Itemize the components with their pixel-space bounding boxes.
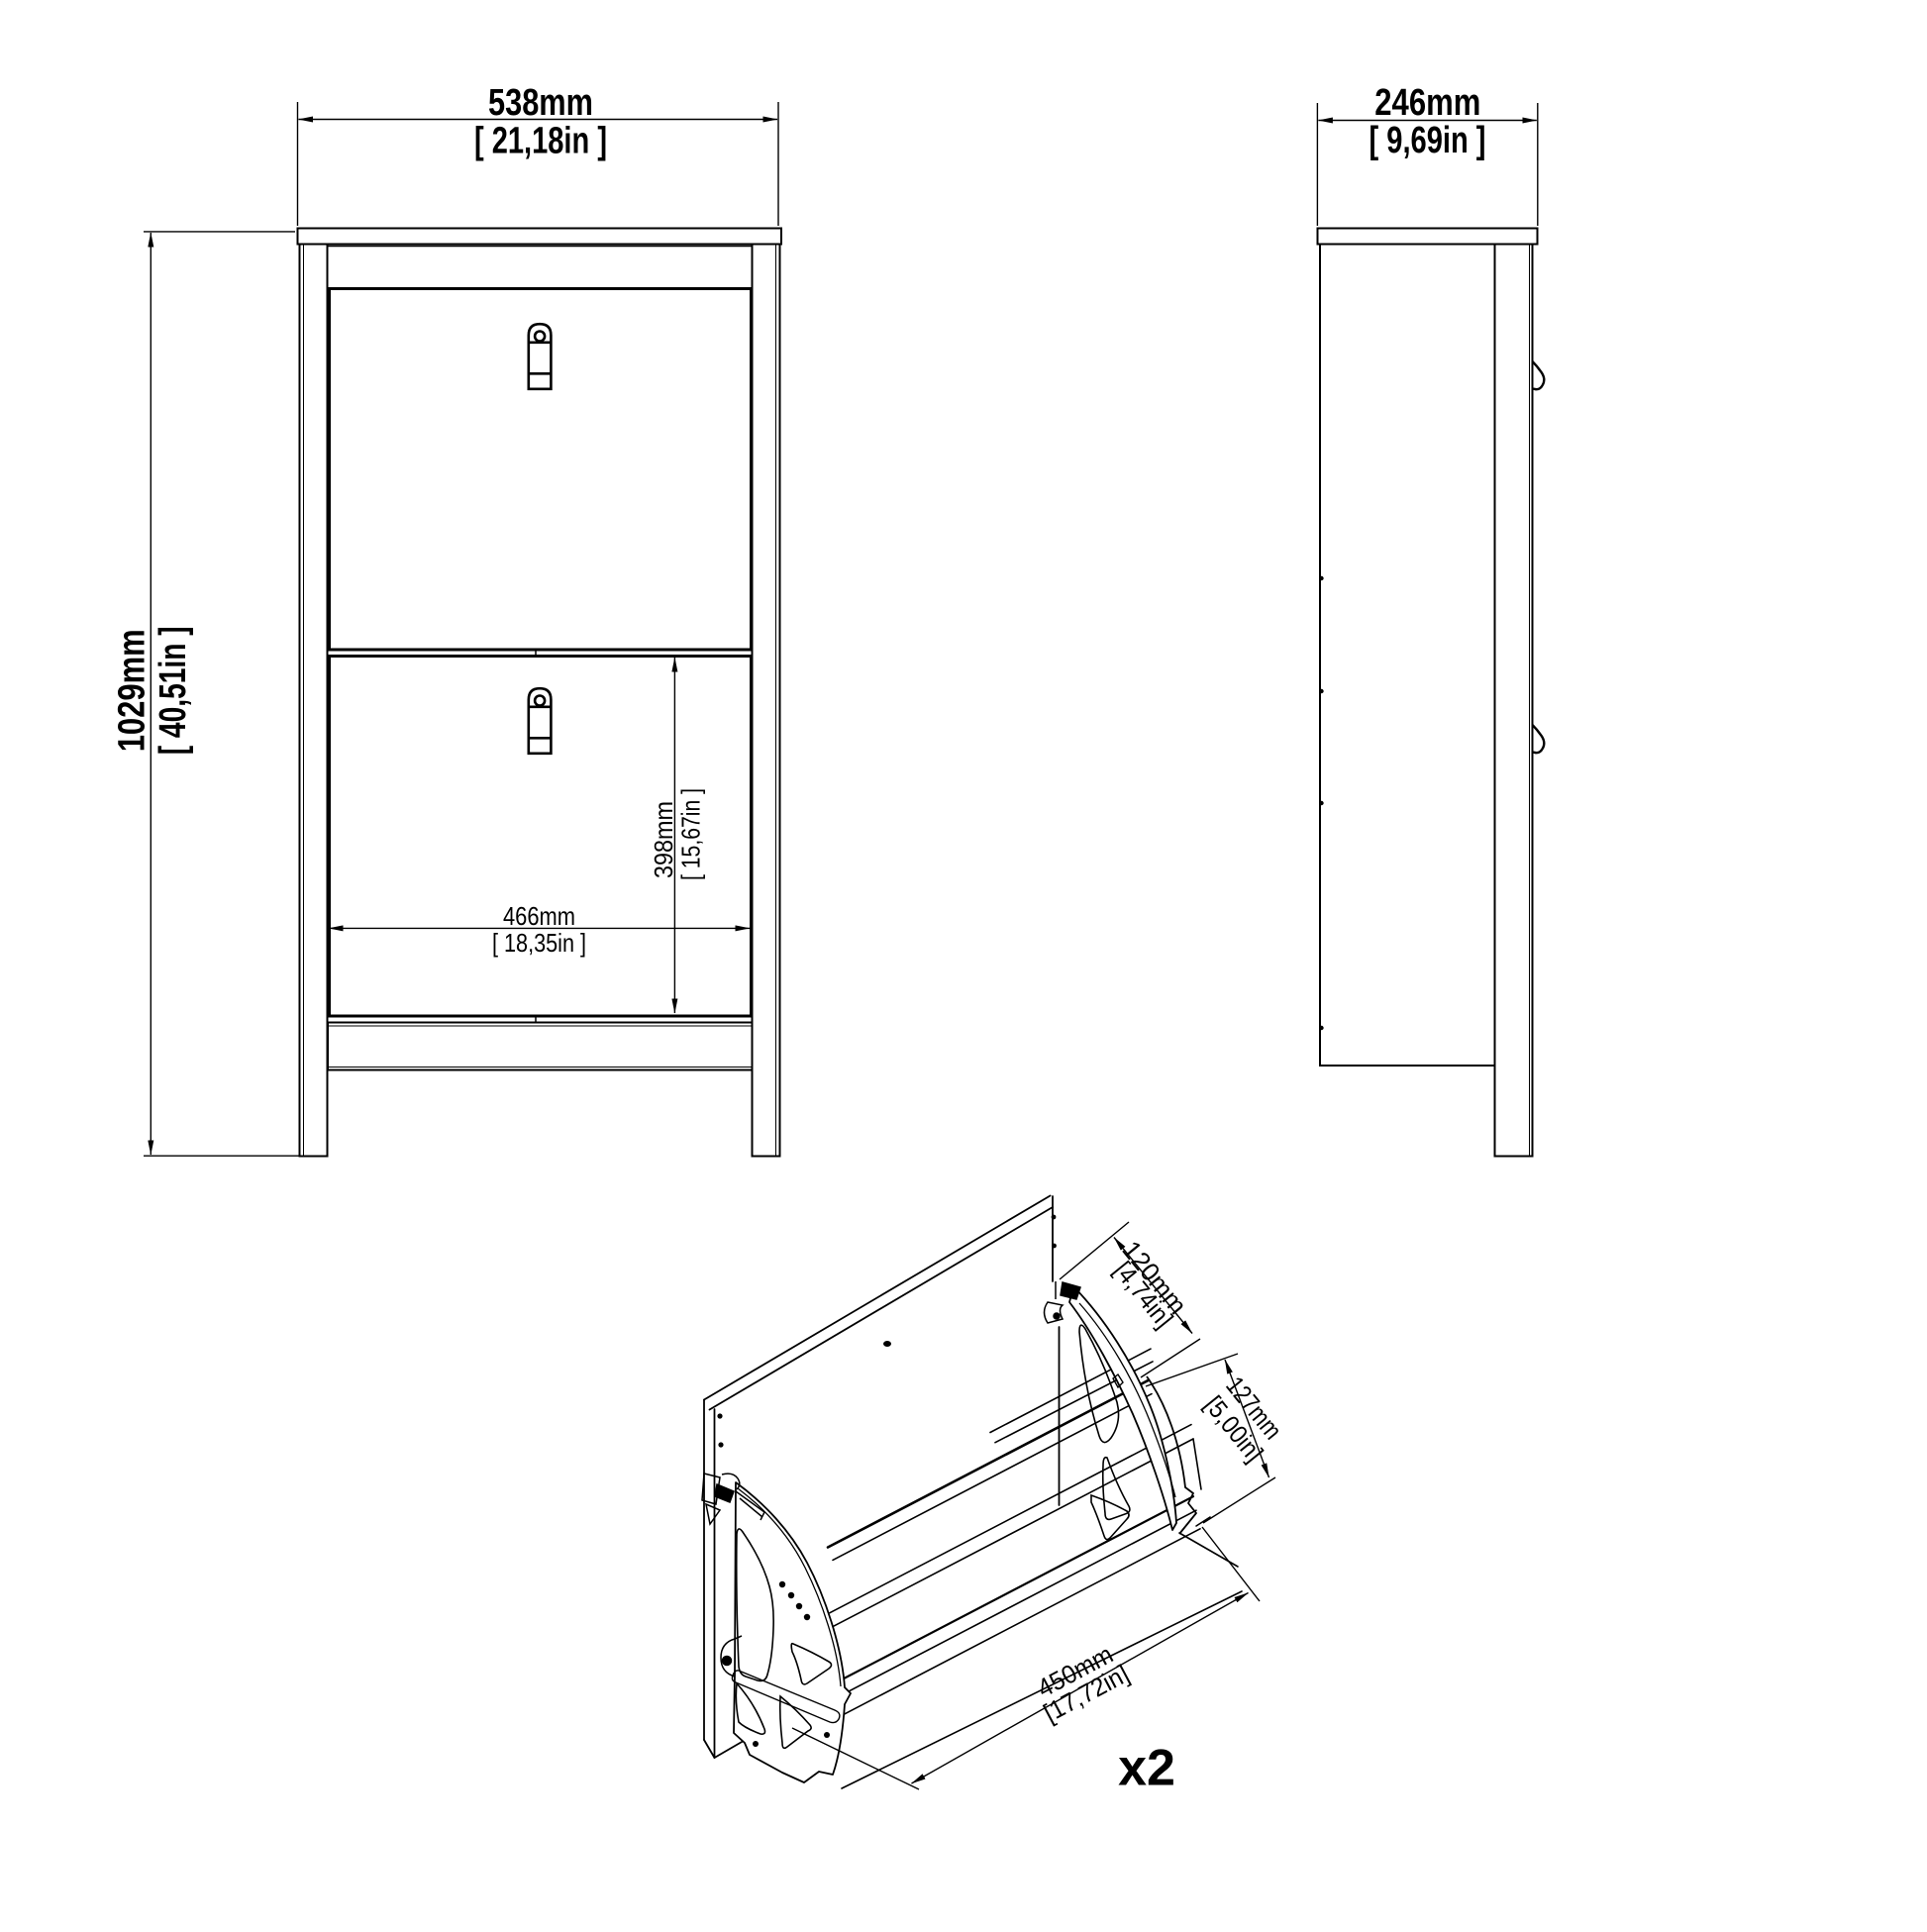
- svg-text:246mm: 246mm: [1374, 82, 1480, 124]
- svg-text:[ 40,51in ]: [ 40,51in ]: [152, 626, 194, 755]
- svg-text:398mm: 398mm: [649, 801, 678, 878]
- svg-text:1029mm: 1029mm: [111, 629, 152, 752]
- svg-text:466mm: 466mm: [503, 901, 575, 931]
- svg-text:[ 15,67in ]: [ 15,67in ]: [675, 788, 705, 880]
- svg-text:[ 18,35in ]: [ 18,35in ]: [492, 928, 586, 958]
- svg-text:[ 21,18in ]: [ 21,18in ]: [474, 121, 607, 162]
- svg-text:x2: x2: [1118, 1740, 1175, 1797]
- svg-text:538mm: 538mm: [488, 82, 593, 124]
- svg-text:[ 9,69in ]: [ 9,69in ]: [1369, 120, 1486, 161]
